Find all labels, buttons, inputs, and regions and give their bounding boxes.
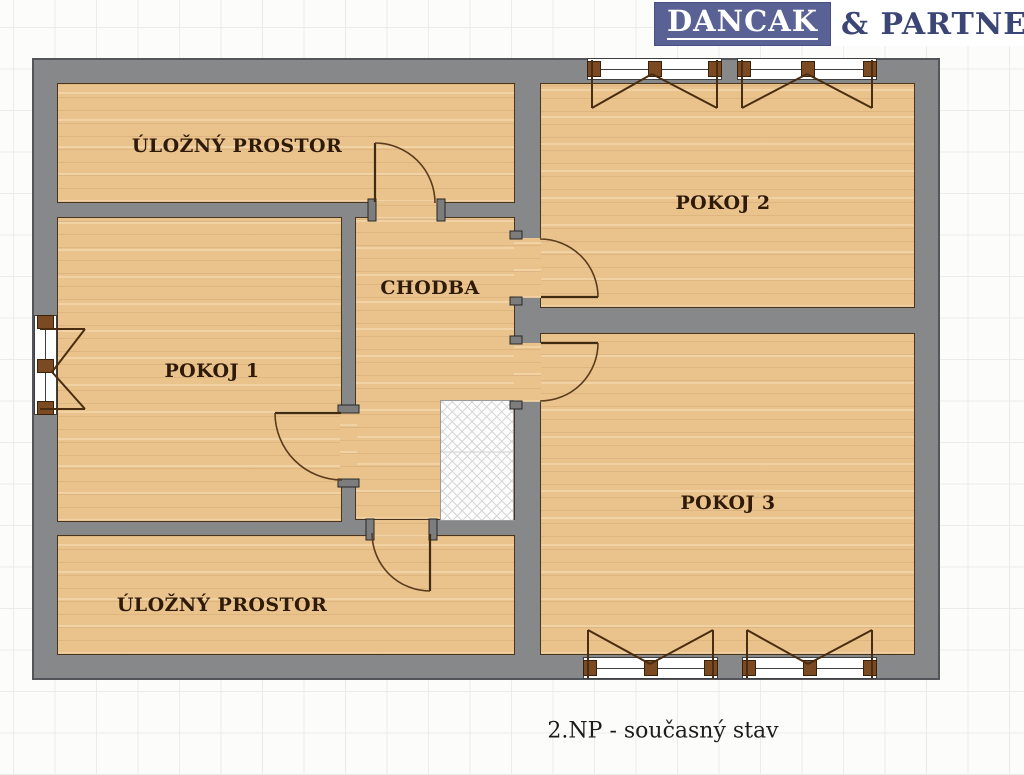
window-mullion-block bbox=[742, 660, 756, 676]
window-mullion-block bbox=[863, 660, 877, 676]
window-mullion-block bbox=[863, 61, 877, 77]
stair-shaft-hatch bbox=[440, 400, 514, 521]
window-top-1 bbox=[587, 58, 722, 80]
window-mullion-block bbox=[708, 61, 722, 77]
window-mullion-block bbox=[704, 660, 718, 676]
door-opening-pokoj-3 bbox=[514, 343, 541, 402]
door-opening-pokoj-2 bbox=[514, 238, 541, 298]
brand-suffix: & PARTNERS bbox=[841, 7, 1024, 42]
brand-name: DANCAK bbox=[667, 6, 818, 39]
window-mullion-block bbox=[648, 61, 662, 77]
window-mullion-block bbox=[644, 660, 658, 676]
room-label-pokoj-3: POKOJ 3 bbox=[680, 492, 775, 514]
brand-logo-box: DANCAK bbox=[654, 2, 831, 45]
door-opening-storage-bottom bbox=[372, 520, 431, 537]
window-mullion-block bbox=[37, 315, 54, 329]
window-top-2 bbox=[737, 58, 877, 80]
window-mullion-block bbox=[37, 401, 54, 415]
window-mullion-block bbox=[737, 61, 751, 77]
room-label-pokoj-2: POKOJ 2 bbox=[675, 192, 770, 214]
room-label-storage-bottom: ÚLOŽNÝ PROSTOR bbox=[117, 594, 327, 616]
room-label-pokoj-1: POKOJ 1 bbox=[164, 360, 259, 382]
window-mullion-block bbox=[803, 660, 817, 676]
plan-caption: 2.NP - současný stav bbox=[547, 719, 778, 744]
floor-plan: ÚLOŽNÝ PROSTOR POKOJ 2 POKOJ 1 CHODBA PO… bbox=[0, 0, 1024, 775]
brand-logo: DANCAK & PARTNERS bbox=[654, 0, 1024, 46]
window-left bbox=[34, 315, 57, 415]
room-label-storage-top: ÚLOŽNÝ PROSTOR bbox=[132, 135, 342, 157]
window-bottom-2 bbox=[742, 657, 877, 679]
window-mullion-block bbox=[801, 61, 815, 77]
door-opening-pokoj-1 bbox=[340, 412, 357, 480]
window-mullion-block bbox=[587, 61, 601, 77]
door-opening-storage-top bbox=[372, 201, 439, 219]
room-label-chodba: CHODBA bbox=[380, 277, 479, 299]
window-bottom-1 bbox=[583, 657, 718, 679]
window-mullion-block bbox=[583, 660, 597, 676]
window-mullion-block bbox=[37, 359, 54, 373]
